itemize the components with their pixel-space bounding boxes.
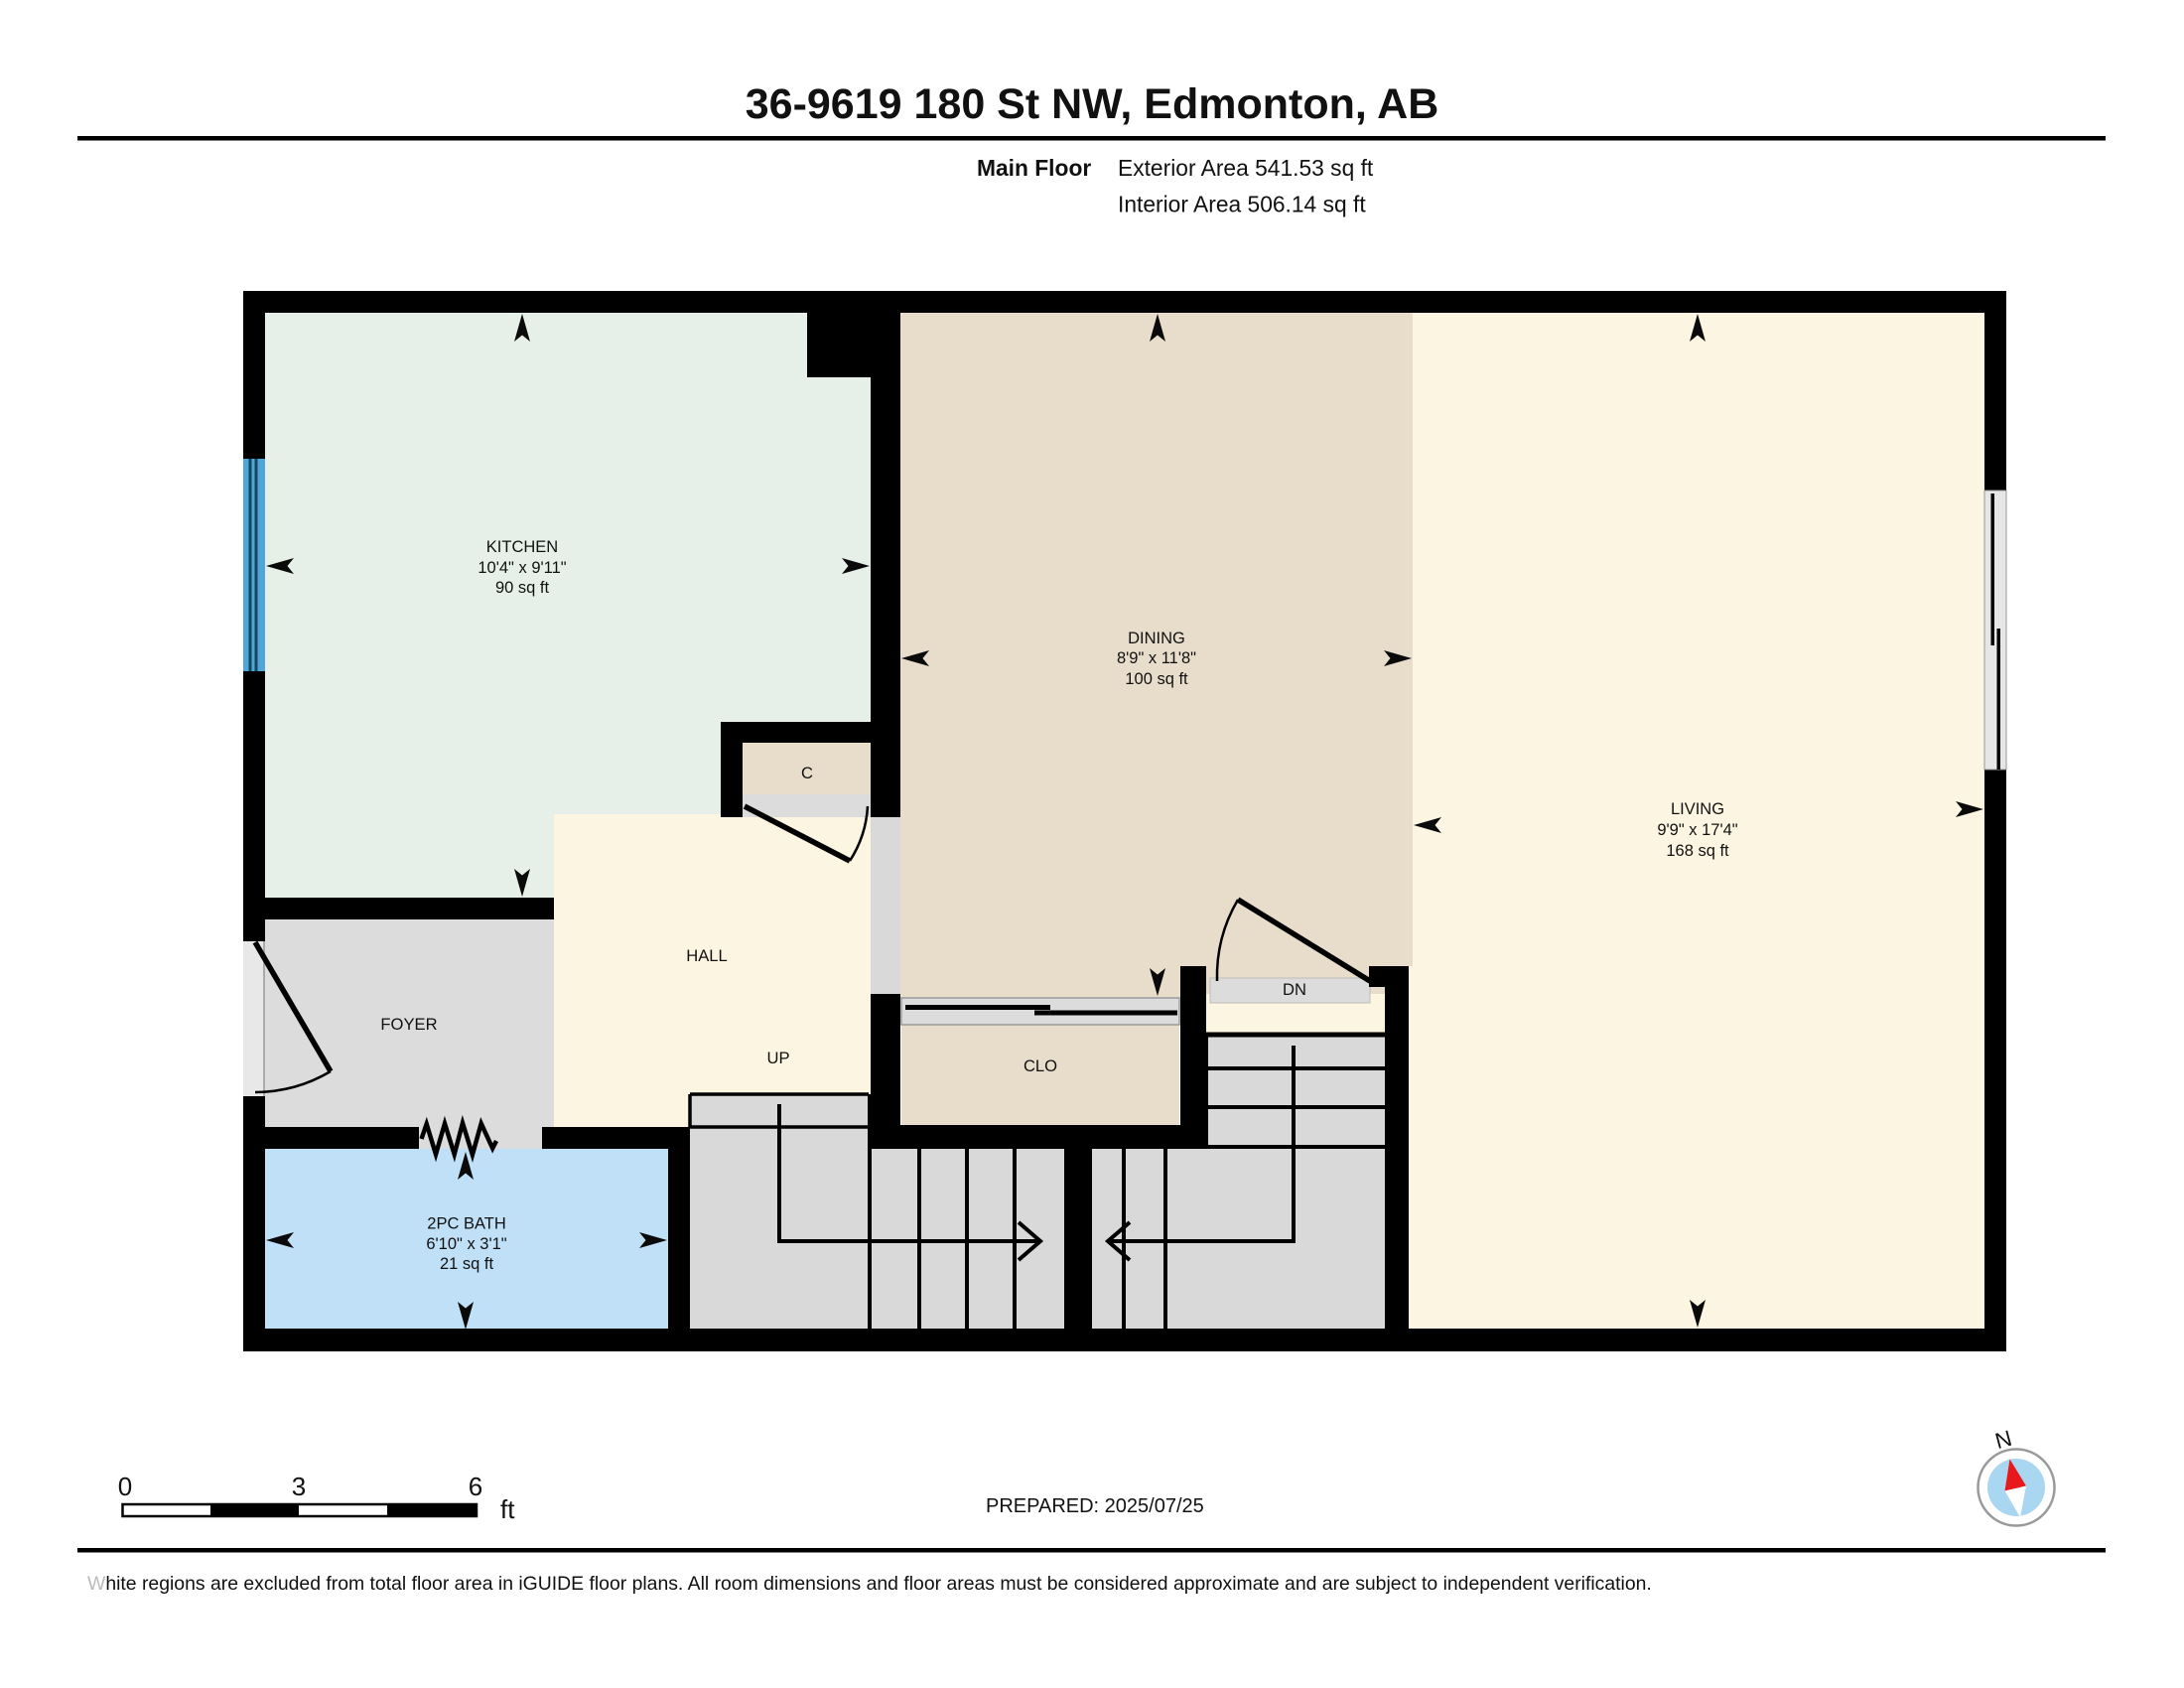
svg-text:KITCHEN: KITCHEN bbox=[486, 538, 558, 556]
svg-text:HALL: HALL bbox=[686, 946, 728, 965]
svg-text:3: 3 bbox=[292, 1472, 306, 1501]
svg-text:Exterior Area 541.53 sq ft: Exterior Area 541.53 sq ft bbox=[1118, 155, 1374, 181]
svg-text:168 sq ft: 168 sq ft bbox=[1666, 842, 1729, 860]
svg-text:White regions are excluded fro: White regions are excluded from total fl… bbox=[87, 1573, 1652, 1595]
svg-text:DINING: DINING bbox=[1128, 630, 1185, 647]
svg-text:Main Floor: Main Floor bbox=[977, 155, 1091, 181]
svg-text:ft: ft bbox=[500, 1494, 515, 1524]
svg-text:6: 6 bbox=[469, 1472, 482, 1501]
svg-text:PREPARED: 2025/07/25: PREPARED: 2025/07/25 bbox=[986, 1495, 1204, 1517]
svg-text:6'10" x 3'1": 6'10" x 3'1" bbox=[426, 1235, 506, 1253]
svg-text:FOYER: FOYER bbox=[380, 1015, 437, 1034]
svg-text:8'9" x 11'8": 8'9" x 11'8" bbox=[1117, 649, 1196, 667]
svg-text:10'4" x 9'11": 10'4" x 9'11" bbox=[478, 559, 566, 577]
svg-text:100 sq ft: 100 sq ft bbox=[1125, 670, 1188, 688]
svg-text:C: C bbox=[801, 764, 813, 782]
svg-text:Interior Area 506.14 sq ft: Interior Area 506.14 sq ft bbox=[1118, 192, 1366, 217]
svg-text:90 sq ft: 90 sq ft bbox=[495, 579, 550, 597]
svg-text:21 sq ft: 21 sq ft bbox=[440, 1255, 494, 1273]
svg-text:CLO: CLO bbox=[1024, 1056, 1057, 1075]
svg-text:DN: DN bbox=[1283, 980, 1306, 999]
svg-text:UP: UP bbox=[766, 1049, 789, 1067]
svg-text:LIVING: LIVING bbox=[1671, 800, 1724, 818]
svg-text:9'9" x 17'4": 9'9" x 17'4" bbox=[1657, 821, 1737, 839]
svg-text:36-9619 180 St NW, Edmonton, A: 36-9619 180 St NW, Edmonton, AB bbox=[746, 80, 1439, 128]
svg-text:0: 0 bbox=[118, 1472, 132, 1501]
svg-text:2PC BATH: 2PC BATH bbox=[427, 1215, 505, 1233]
